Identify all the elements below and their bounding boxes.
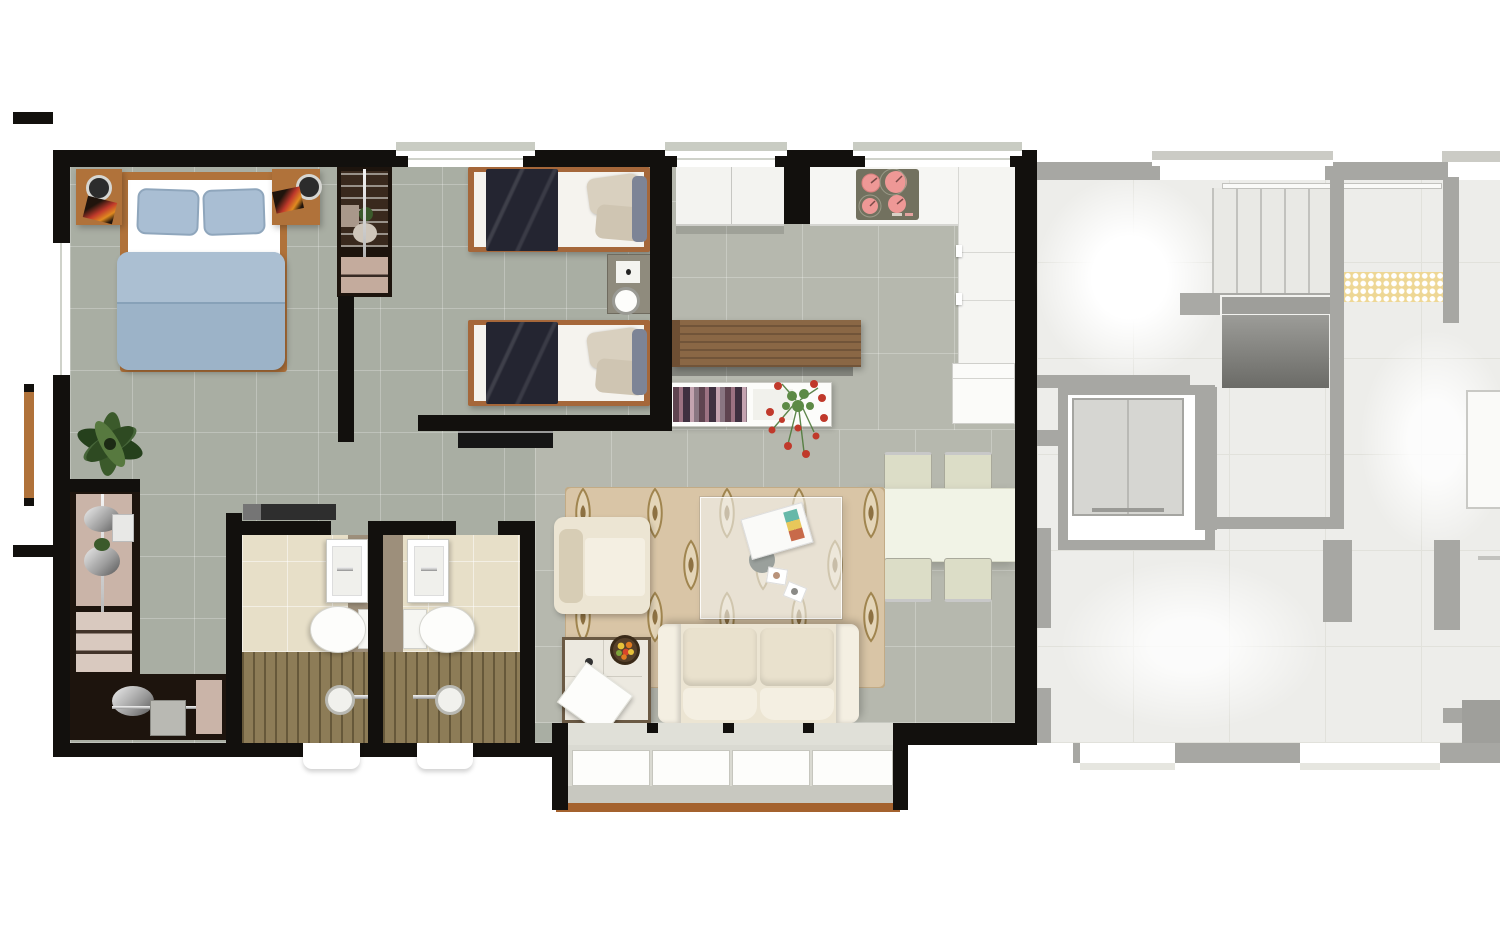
- fridge-door-seam: [953, 378, 1014, 379]
- wall-bath-west: [226, 513, 242, 743]
- ghost-window-bottom-2-sill: [1300, 763, 1440, 770]
- ghost-window-bottom-2: [1300, 743, 1440, 763]
- wood-breakfast-bar: [672, 320, 861, 367]
- bath2-basin: [414, 546, 444, 596]
- duvet-fold: [117, 252, 285, 304]
- window-top-2-glass: [677, 158, 775, 160]
- window-top-2-sill: [665, 142, 787, 151]
- terrace-door-jamb-bottom: [24, 498, 34, 506]
- bath1-shower-head: [325, 685, 355, 715]
- cabinet-shadow: [676, 226, 784, 234]
- threshold-notch-3: [803, 723, 814, 733]
- stair-landing-rail: [1220, 295, 1332, 316]
- upper-cabinets: [676, 167, 784, 226]
- ghost-veil-bottom: [1060, 560, 1320, 730]
- coaster-2-cup: [791, 588, 798, 595]
- wall-bottom-right: [893, 723, 1037, 745]
- magazine: [740, 502, 813, 560]
- ghost-neighbor-bar: [1478, 556, 1500, 560]
- coaster-1-cup: [773, 572, 780, 579]
- nook-fixture-3: [112, 686, 154, 716]
- counter-handle-2: [956, 293, 962, 305]
- balcony-wall-right: [893, 723, 908, 810]
- wall-below-wardrobe: [338, 296, 354, 442]
- bath2-wall-band: [383, 535, 403, 652]
- ghost-wall-stairhall-west: [1195, 387, 1217, 530]
- window-top-1-glass: [408, 158, 523, 160]
- elevator-door-line: [1092, 508, 1164, 512]
- sliding-panel-4: [812, 750, 893, 786]
- ghost-wall-stub-mid-2: [1434, 540, 1460, 630]
- balcony-wood-edge: [556, 803, 900, 812]
- floor-plant: [62, 392, 158, 492]
- tactile-paving-mat: [1344, 272, 1452, 302]
- bath1-basin: [332, 546, 362, 596]
- threshold-notch-2: [723, 723, 734, 733]
- tv-shelf: [458, 431, 553, 448]
- fridge: [952, 363, 1015, 424]
- magazine-art: [783, 509, 805, 542]
- two-seat-sofa: [658, 624, 859, 723]
- dining-table: [868, 488, 1020, 562]
- single-bed-2-blanket: [486, 322, 558, 404]
- wall-right: [1015, 150, 1037, 745]
- terrace-wall-cap-top: [13, 112, 53, 124]
- armchair-back: [559, 529, 583, 603]
- armchair-seat: [585, 538, 645, 596]
- wardrobe-drawers: [341, 257, 388, 293]
- sliding-panel-2: [652, 750, 730, 786]
- wall-left: [53, 150, 70, 757]
- bath1-toilet-bowl: [310, 606, 366, 653]
- ghost-wall-west-lower-2: [1037, 688, 1051, 743]
- balcony-floor-lower: [568, 786, 893, 804]
- pillow-right: [202, 188, 266, 236]
- sofa-seat-cushion-1: [683, 688, 757, 720]
- window-left-glass: [60, 243, 62, 375]
- nook-panel-end: [196, 680, 222, 734]
- counter-seam-2: [959, 300, 1016, 301]
- wall-bath-east: [520, 521, 535, 743]
- sliding-panel-3: [732, 750, 810, 786]
- window-top-3-glass: [865, 158, 1010, 160]
- wall-bedroom2-south: [418, 415, 667, 431]
- window-top-1-sill-inner: [396, 151, 535, 156]
- hall-console: [243, 504, 336, 520]
- wardrobe-shelf-box: [341, 205, 359, 227]
- wall-bath-north-2: [368, 521, 456, 535]
- single-bed-1-accent-pillow: [632, 176, 647, 242]
- ghost-wall-stub-mid-1: [1323, 540, 1352, 622]
- wall-bath-north-1: [242, 521, 331, 535]
- bath2-toilet-bowl: [419, 606, 475, 653]
- sofa-armrest-left: [658, 624, 681, 723]
- ghost-neighbor-counter: [1462, 700, 1500, 748]
- bath2-vanity-sink: [407, 539, 449, 603]
- stair-void: [1222, 315, 1329, 388]
- nook-drawers: [76, 612, 132, 672]
- wardrobe-plant-icon: [359, 207, 373, 221]
- elevator-car: [1072, 398, 1184, 516]
- counter-seam-1: [959, 252, 1016, 253]
- red-flower-arrangement: [752, 372, 844, 462]
- ghost-window-bottom-1: [1080, 743, 1175, 763]
- wall-bath-divider: [368, 535, 383, 743]
- ghost-window-bottom-1-sill: [1080, 763, 1175, 770]
- threshold-notch-1: [647, 723, 658, 733]
- ghost-window-top-2-sill: [1442, 151, 1500, 162]
- nook-plant-sprig: [94, 538, 110, 551]
- terrace-wall-cap-mid: [13, 545, 53, 557]
- ghost-wall-stub-fridge: [1037, 430, 1062, 446]
- bath1-faucet: [337, 567, 353, 571]
- glass-coffee-table: [700, 497, 842, 619]
- ghost-wall-stairs-east: [1330, 180, 1344, 529]
- sofa-back-cushion-2: [760, 628, 834, 686]
- wall-nook-north: [62, 479, 140, 492]
- nook-white-box: [112, 514, 134, 542]
- ghost-wall-corridor-east: [1443, 177, 1459, 323]
- bath1-vanity-sink: [326, 539, 368, 603]
- ghost-window-top-1-sill-inner: [1152, 160, 1333, 166]
- bath2-faucet: [421, 567, 437, 571]
- armchair: [554, 517, 650, 614]
- floorplan-canvas: [0, 0, 1500, 938]
- elevator-car-seam: [1127, 400, 1129, 514]
- ghost-wall-west-lower-1: [1037, 528, 1051, 628]
- bath2-shower-arm: [413, 695, 437, 699]
- pillow-left: [136, 188, 200, 236]
- ghost-wall-elevator-north: [1037, 375, 1190, 388]
- sliding-panel-1: [572, 750, 650, 786]
- cabinet-door-seam: [731, 167, 732, 224]
- book-spines: [673, 387, 747, 422]
- dining-chair-bottom-1: [884, 558, 932, 602]
- single-bed-1-blanket: [486, 169, 558, 251]
- sofa-seat-cushion-2: [760, 688, 834, 720]
- dining-chair-bottom-2: [944, 558, 992, 602]
- wall-kitchen-stub: [784, 167, 810, 224]
- bath2-shower-head: [435, 685, 465, 715]
- hall-console-endcap: [243, 504, 261, 520]
- window-top-2-sill-inner: [665, 151, 787, 156]
- ghost-wall-under-stairs: [1217, 517, 1344, 529]
- fruit-bowl: [609, 634, 641, 666]
- ghost-neighbor-table: [1466, 390, 1500, 509]
- nook-gray-box: [150, 700, 186, 736]
- single-bed-2-accent-pillow: [632, 329, 647, 395]
- tall-counter: [958, 167, 1016, 363]
- bath1-door-threshold: [303, 743, 360, 769]
- balcony-wall-left: [552, 723, 568, 810]
- bath2-door-threshold: [417, 743, 473, 769]
- window-top-1-sill: [396, 142, 535, 151]
- table-clock: [612, 287, 640, 315]
- wardrobe: [337, 165, 392, 297]
- sofa-armrest-right: [836, 624, 859, 723]
- window-top-3-sill-inner: [853, 151, 1022, 156]
- ghost-veil-room-topleft: [1035, 175, 1225, 380]
- terrace-door-jamb-top: [24, 384, 34, 392]
- counter-handle-1: [956, 245, 962, 257]
- window-top-3-sill: [853, 142, 1022, 151]
- sofa-back-cushion-1: [683, 628, 757, 686]
- cooktop-4-burners: [856, 169, 919, 220]
- terrace-wood-door: [24, 392, 34, 498]
- staircase-treads: [1212, 188, 1330, 293]
- nightstand-lamp-dot: [626, 269, 631, 275]
- wall-bedroom2-kitchen: [650, 167, 672, 431]
